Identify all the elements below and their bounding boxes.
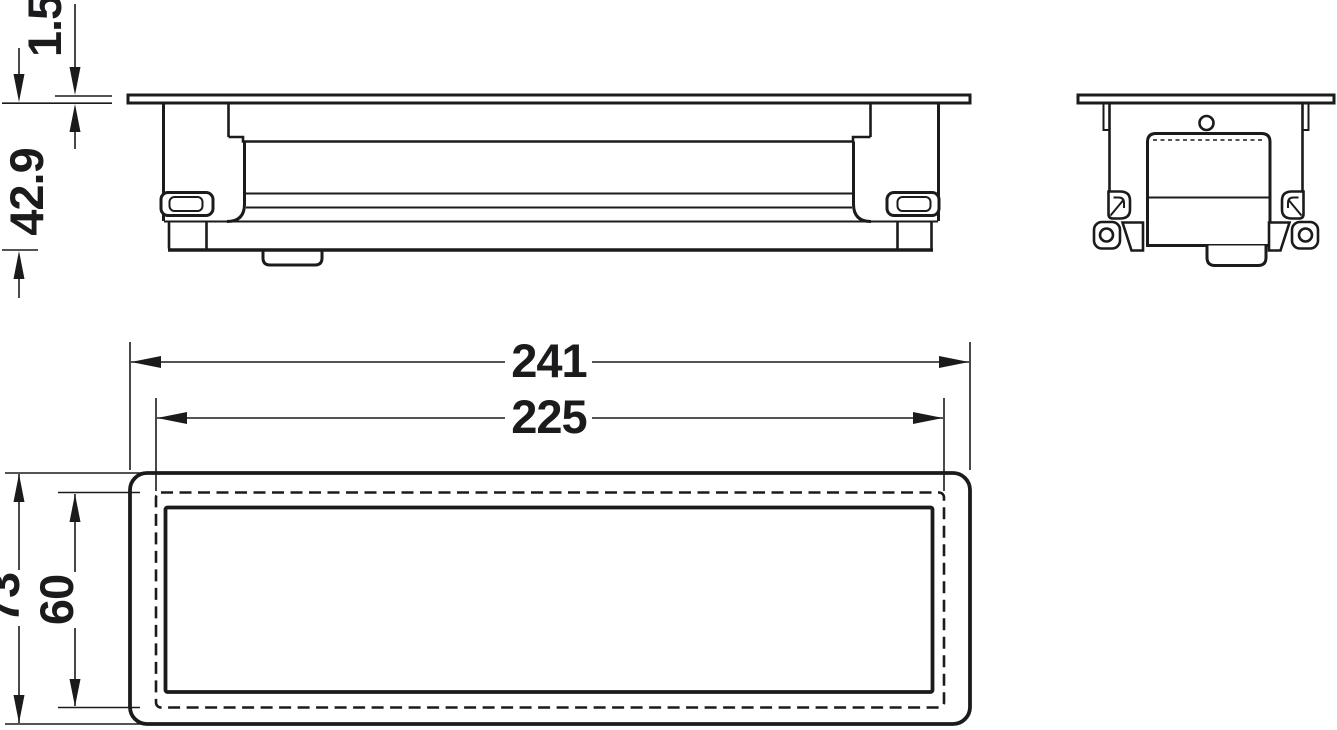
side-tray-body bbox=[1148, 134, 1271, 246]
arrowhead-up bbox=[70, 104, 81, 132]
arrowhead-up bbox=[70, 494, 81, 522]
arrowhead-left bbox=[131, 356, 161, 368]
arrowhead-right bbox=[913, 412, 943, 424]
arrowhead-down bbox=[14, 695, 25, 723]
side-left-clip-wedge bbox=[1123, 223, 1144, 251]
technical-drawing: 1.5 42.9 241 225 bbox=[0, 0, 1337, 730]
front-left-inner-wall bbox=[227, 142, 245, 222]
dim-label-flange-thickness: 1.5 bbox=[18, 0, 71, 57]
arrowhead-up bbox=[14, 251, 25, 279]
front-view bbox=[128, 95, 970, 265]
dim-cutout-width: 60 bbox=[30, 493, 140, 708]
side-flange-outline bbox=[1078, 95, 1334, 103]
side-left-clip-pad bbox=[1094, 222, 1120, 249]
dim-label-cutout-width: 60 bbox=[30, 575, 83, 625]
arrowhead-up bbox=[14, 474, 25, 502]
front-right-inner-wall bbox=[854, 142, 872, 222]
dim-label-installation-depth: 42.9 bbox=[0, 148, 53, 235]
dim-label-cutout-length: 225 bbox=[511, 390, 586, 443]
side-right-clip-pad bbox=[1292, 222, 1318, 249]
front-flange-outline bbox=[128, 95, 970, 103]
side-view bbox=[1078, 95, 1334, 266]
dim-label-overall-width: 73 bbox=[0, 573, 29, 623]
arrowhead-down bbox=[70, 679, 81, 707]
plan-view bbox=[130, 473, 970, 724]
dim-flange-thickness: 1.5 bbox=[18, 0, 81, 149]
side-bottom-foot bbox=[1207, 246, 1266, 266]
front-recess-top-edge bbox=[229, 137, 871, 142]
arrowhead-down bbox=[14, 74, 25, 102]
arrowhead-left bbox=[157, 412, 187, 424]
dim-installation-depth: 42.9 bbox=[0, 48, 53, 298]
screw-hole bbox=[1200, 116, 1214, 130]
technical-drawing-page: 1.5 42.9 241 225 bbox=[0, 0, 1337, 730]
side-right-clip-wedge bbox=[1269, 223, 1290, 251]
dim-label-overall-length: 241 bbox=[511, 334, 586, 387]
front-bottom-pad bbox=[263, 251, 322, 265]
plan-outer-flange bbox=[130, 473, 970, 724]
arrowhead-down bbox=[70, 67, 81, 95]
arrowhead-right bbox=[939, 356, 969, 368]
